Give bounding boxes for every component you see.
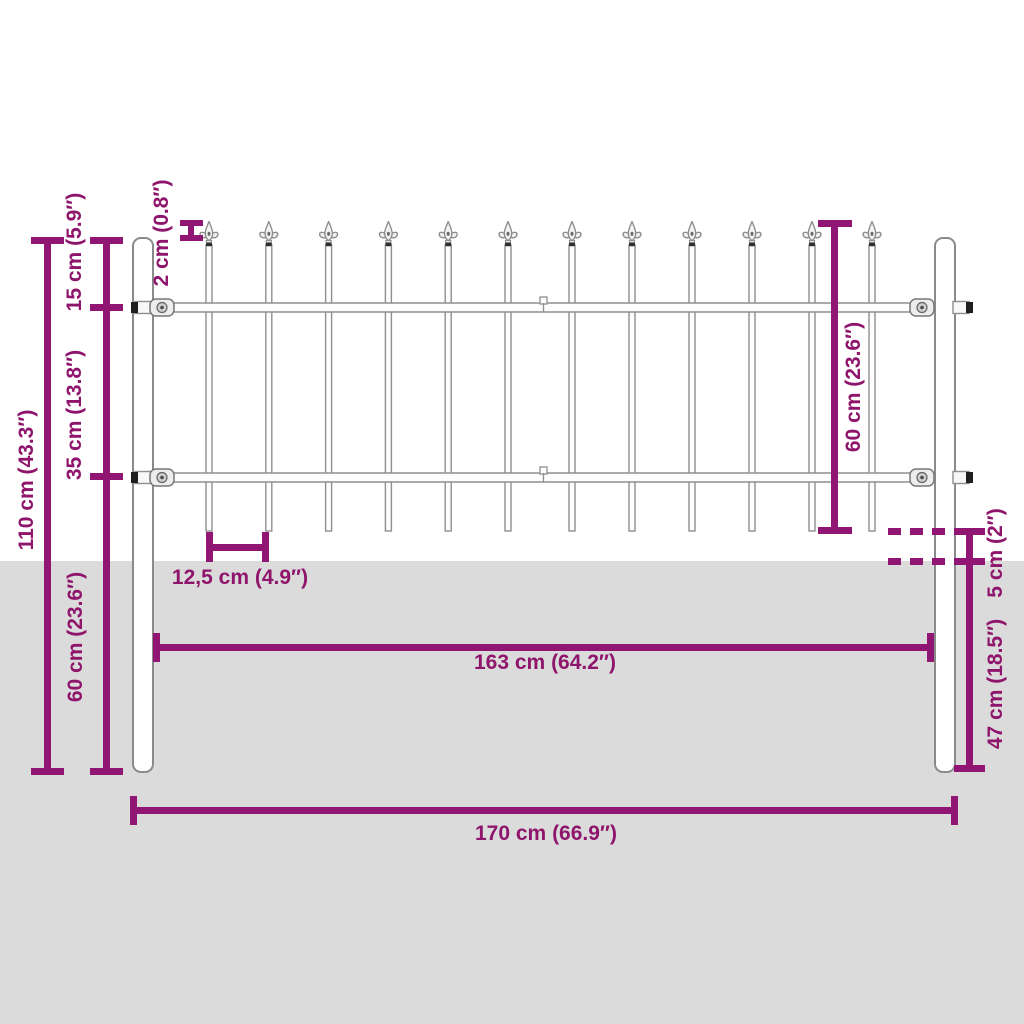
dim-panel-height-line	[831, 223, 838, 531]
clamp-cap	[131, 302, 138, 313]
dim-embed-depth-label: 47 cm (18.5″)	[984, 619, 1008, 749]
clamp-cap	[966, 472, 973, 483]
spear-finial-icon	[499, 222, 517, 247]
dim-110-tick-top	[31, 237, 64, 244]
dim-panel-height-tick-bottom	[818, 527, 852, 534]
dim-2cm-tick-bottom	[180, 235, 203, 241]
dim-total-width-tick-left	[130, 796, 137, 825]
dim-ground-depth-tick-bottom	[954, 765, 985, 772]
dim-picket-spacing-label: 12,5 cm (4.9″)	[172, 566, 308, 590]
picket-bar	[749, 245, 755, 531]
spear-finial-icon	[743, 222, 761, 247]
picket-bar	[689, 245, 695, 531]
clamp-bolt-center	[160, 476, 164, 480]
picket-bar	[266, 245, 272, 531]
dim-left-tick-bottom	[90, 768, 123, 775]
dim-total-width-label: 170 cm (66.9″)	[475, 822, 617, 846]
dim-ground-depth-tick-top	[954, 528, 985, 535]
dim-left-stack-line	[103, 240, 110, 772]
dim-panel-width-line	[153, 644, 934, 651]
picket-bar	[629, 245, 635, 531]
dim-110-line	[44, 240, 51, 772]
dashed-line-picket-bottom	[888, 528, 954, 535]
picket-bar	[445, 245, 451, 531]
fence-illustration	[0, 0, 1024, 1024]
dim-total-height-label: 110 cm (43.3″)	[15, 410, 39, 551]
dim-total-width-line	[130, 807, 958, 814]
rail-group	[168, 297, 916, 482]
dim-picket-spacing-tick-left	[206, 532, 213, 562]
spear-finial-icon	[260, 222, 278, 247]
dim-picket-spacing-tick-right	[262, 532, 269, 562]
picket-bar	[569, 245, 575, 531]
picket-bar	[505, 245, 511, 531]
spear-finial-icon	[320, 222, 338, 247]
dim-2cm-tick-top	[180, 220, 203, 226]
dim-picket-spacing-line	[206, 544, 268, 551]
dim-panel-height-label: 60 cm (23.6″)	[842, 322, 866, 452]
dim-panel-width-tick-left	[153, 633, 160, 662]
dim-110-tick-bottom	[31, 768, 64, 775]
spear-finial-icon	[623, 222, 641, 247]
dim-left-tick-rail1	[90, 304, 123, 311]
dim-panel-width-tick-right	[927, 633, 934, 662]
spear-finial-icon	[379, 222, 397, 247]
dim-panel-height-tick-top	[818, 220, 852, 227]
clamp-cap	[966, 302, 973, 313]
clamp-cap	[131, 472, 138, 483]
right-post	[935, 238, 955, 772]
picket-bar	[809, 245, 815, 531]
dim-total-width-tick-right	[951, 796, 958, 825]
dim-left-tick-post-top	[90, 237, 123, 244]
dim-ground-clearance-label: 5 cm (2″)	[984, 508, 1008, 597]
dim-top-section-label: 15 cm (5.9″)	[63, 193, 87, 312]
spear-finial-icon	[439, 222, 457, 247]
dim-panel-width-label: 163 cm (64.2″)	[474, 651, 616, 675]
clamp-bolt-center	[160, 306, 164, 310]
dim-spear-offset-label: 2 cm (0.8″)	[150, 180, 174, 287]
spear-finial-icon	[683, 222, 701, 247]
spear-finial-icon	[863, 222, 881, 247]
clamp-bolt-center	[920, 306, 924, 310]
spear-finial-icon	[563, 222, 581, 247]
dashed-line-ground-level	[888, 558, 954, 565]
page-background: { "diagram": { "type": "product-dimensio…	[0, 0, 1024, 1024]
picket-group	[200, 222, 881, 532]
clamp-bolt-center	[920, 476, 924, 480]
dim-rail-spacing-label: 35 cm (13.8″)	[63, 350, 87, 480]
picket-bar	[385, 245, 391, 531]
bottom-rail-joint-tab	[540, 467, 547, 474]
dim-left-tick-rail2	[90, 473, 123, 480]
dim-ground-depth-tick-ground	[954, 558, 985, 565]
picket-bar	[869, 245, 875, 531]
left-post	[133, 238, 153, 772]
dim-ground-depth-line	[966, 531, 973, 772]
picket-bar	[206, 245, 212, 531]
dim-post-below-panel-label: 60 cm (23.6″)	[64, 572, 88, 702]
picket-bar	[326, 245, 332, 531]
top-rail-joint-tab	[540, 297, 547, 304]
